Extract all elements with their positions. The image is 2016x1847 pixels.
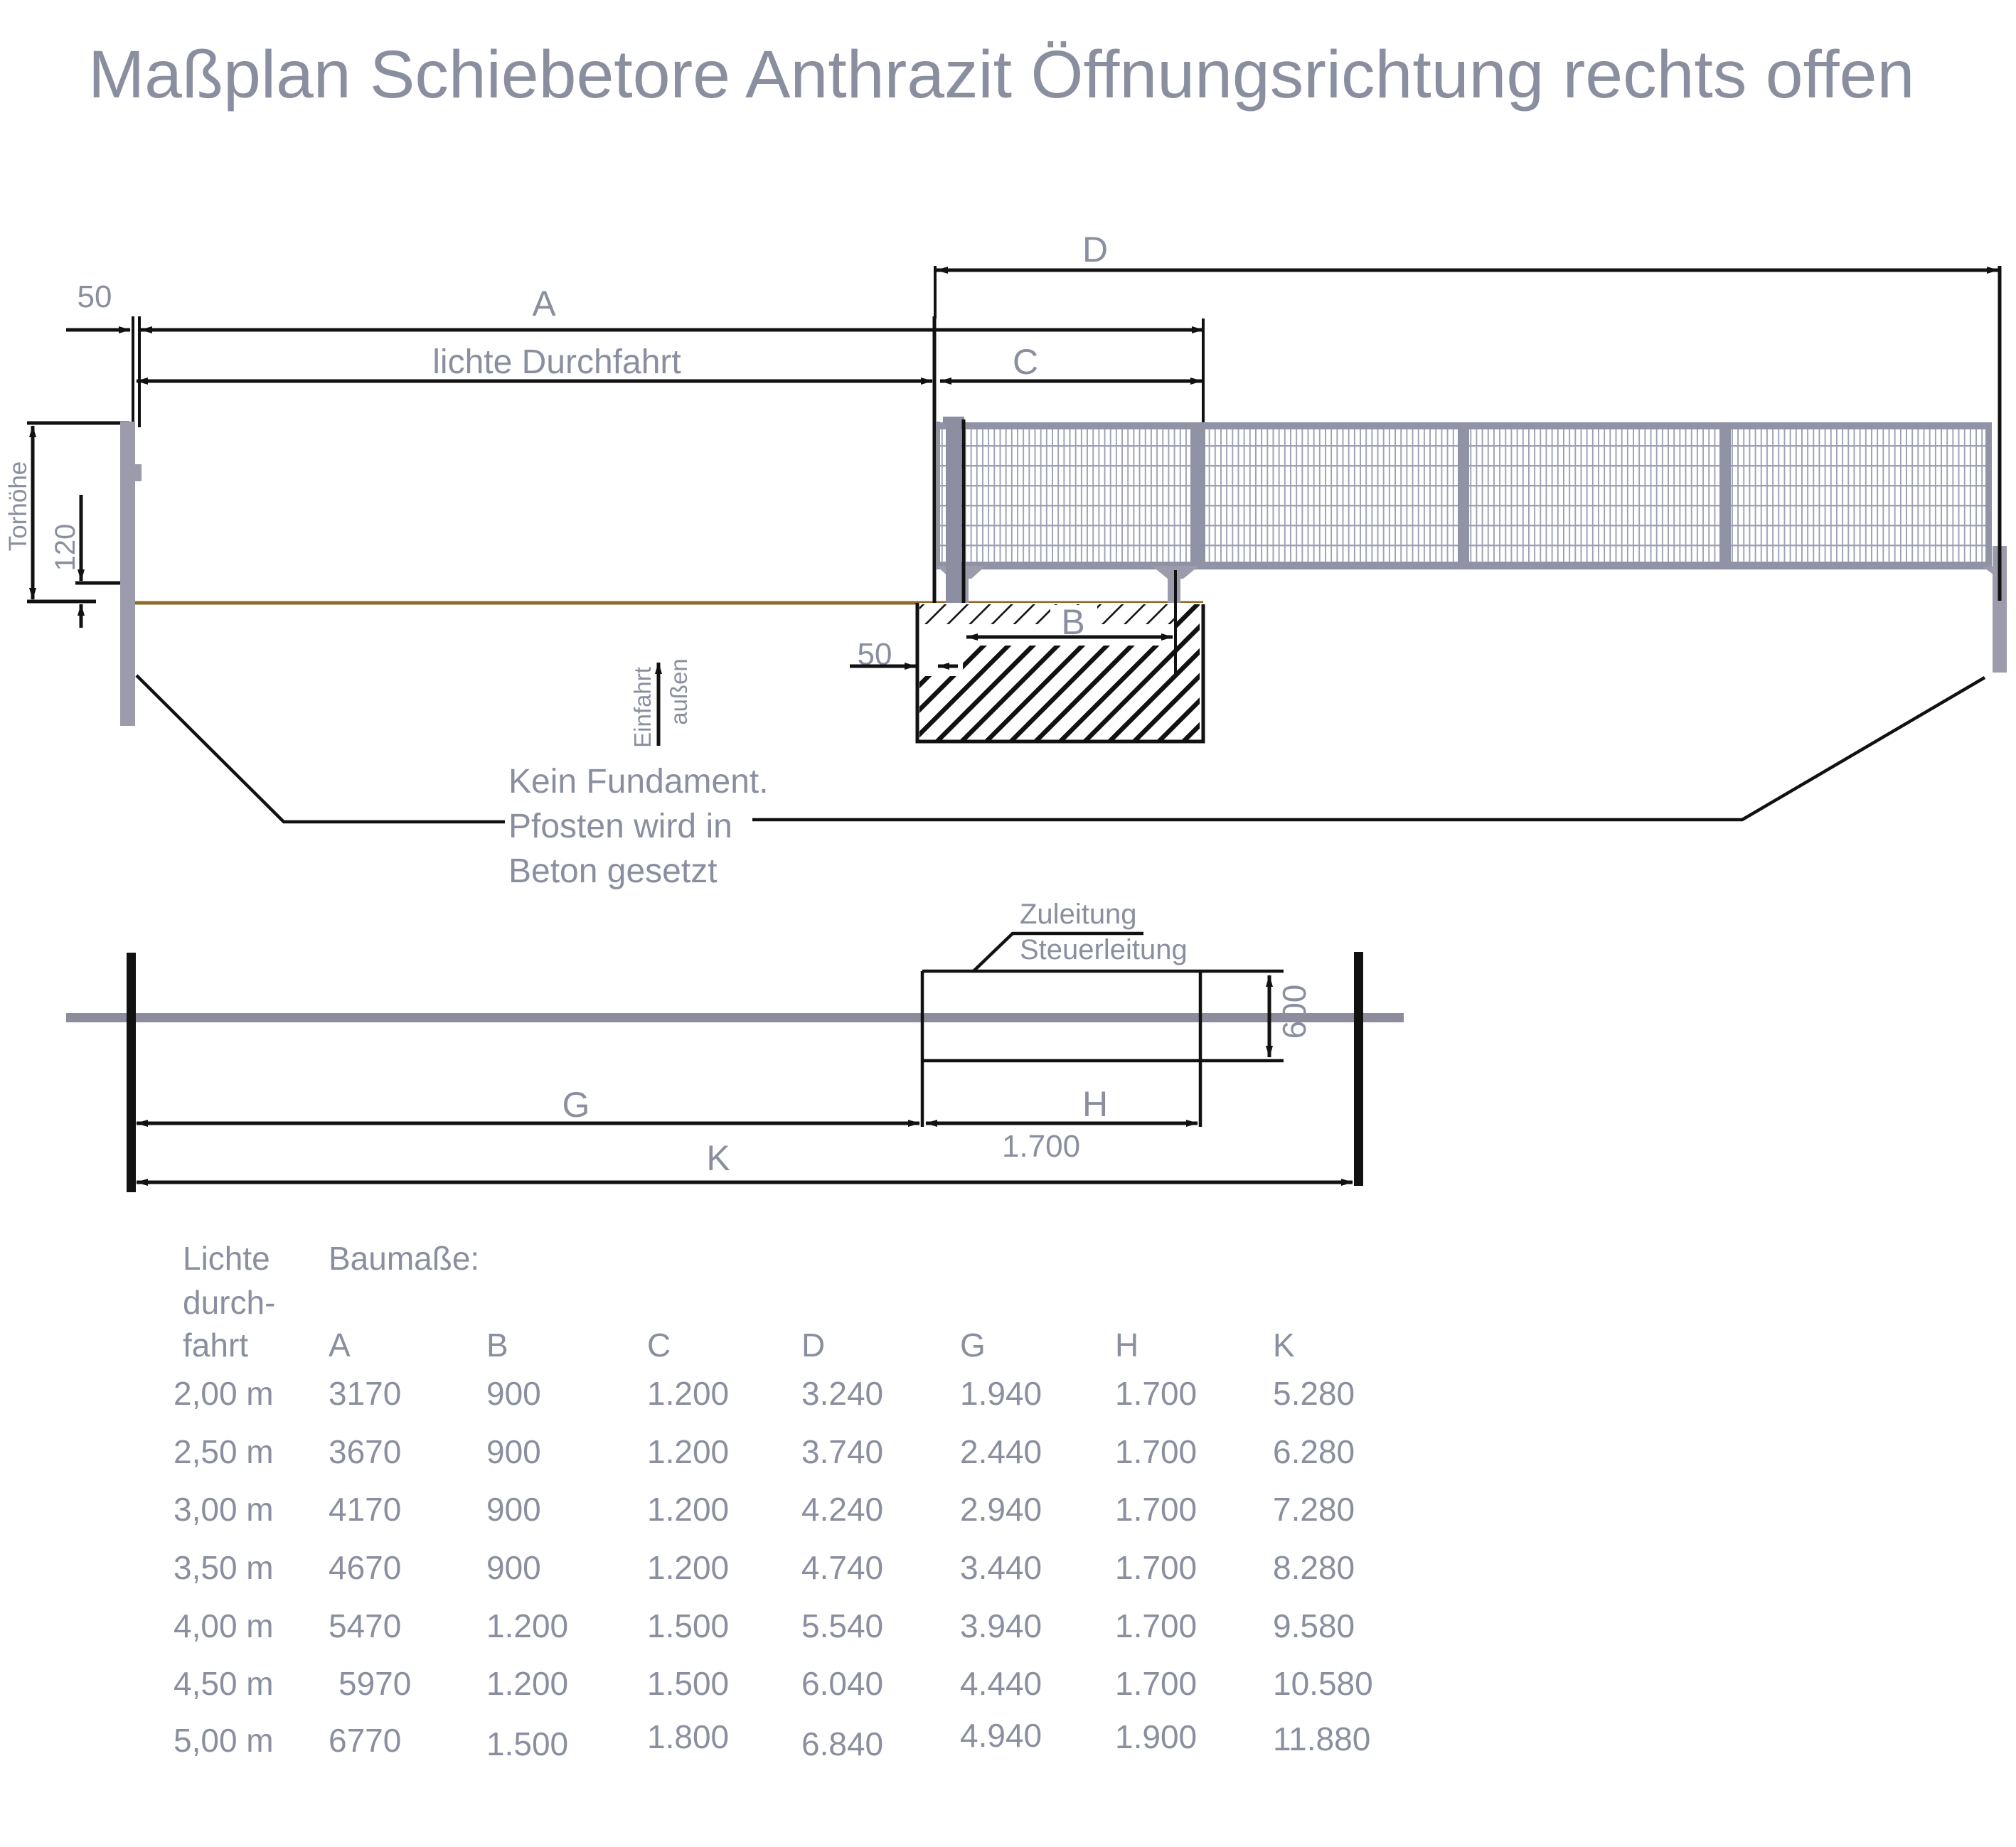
svg-text:Maßplan Schiebetore Anthrazit: Maßplan Schiebetore Anthrazit Öffnungsri…	[88, 37, 1914, 112]
svg-text:1.200: 1.200	[647, 1433, 729, 1470]
svg-text:A: A	[532, 284, 556, 323]
svg-text:600: 600	[1276, 985, 1313, 1039]
svg-text:H: H	[1082, 1084, 1108, 1124]
svg-text:A: A	[329, 1327, 351, 1364]
svg-text:K: K	[1273, 1327, 1295, 1364]
svg-text:Lichte: Lichte	[183, 1240, 270, 1277]
svg-text:2,00 m: 2,00 m	[174, 1375, 274, 1412]
svg-text:Zuleitung: Zuleitung	[1020, 899, 1137, 930]
svg-text:1.700: 1.700	[1115, 1375, 1197, 1412]
svg-text:5.540: 5.540	[801, 1607, 883, 1644]
svg-text:1.500: 1.500	[486, 1725, 568, 1762]
svg-text:K: K	[706, 1138, 730, 1178]
svg-text:Einfahrt: Einfahrt	[629, 667, 656, 748]
svg-text:außen: außen	[666, 658, 692, 725]
svg-text:3.440: 3.440	[960, 1549, 1042, 1586]
svg-text:6.040: 6.040	[801, 1665, 883, 1702]
svg-text:1.700: 1.700	[1115, 1491, 1197, 1528]
svg-text:Pfosten wird in: Pfosten wird in	[508, 808, 732, 845]
svg-text:5,00 m: 5,00 m	[174, 1722, 274, 1759]
svg-text:fahrt: fahrt	[183, 1327, 248, 1364]
svg-text:1.500: 1.500	[647, 1665, 729, 1702]
svg-text:1.700: 1.700	[1115, 1665, 1197, 1702]
svg-text:3170: 3170	[329, 1375, 401, 1412]
svg-text:G: G	[562, 1085, 590, 1125]
svg-text:1.200: 1.200	[647, 1375, 729, 1412]
svg-text:C: C	[647, 1327, 671, 1364]
svg-text:3.240: 3.240	[801, 1375, 883, 1412]
svg-text:3670: 3670	[329, 1433, 401, 1470]
svg-text:3,50 m: 3,50 m	[174, 1549, 274, 1586]
svg-text:Torhöhe: Torhöhe	[4, 461, 32, 551]
svg-text:5970: 5970	[338, 1665, 411, 1702]
svg-text:4,00 m: 4,00 m	[174, 1607, 274, 1644]
svg-text:4.240: 4.240	[801, 1491, 883, 1528]
svg-text:2.940: 2.940	[960, 1491, 1042, 1528]
svg-text:D: D	[1082, 230, 1108, 269]
svg-text:5470: 5470	[329, 1607, 401, 1644]
svg-text:2.440: 2.440	[960, 1433, 1042, 1470]
svg-text:1.500: 1.500	[647, 1607, 729, 1644]
svg-text:Beton gesetzt: Beton gesetzt	[508, 852, 718, 890]
svg-text:4,50 m: 4,50 m	[174, 1665, 274, 1702]
svg-text:1.700: 1.700	[1115, 1607, 1197, 1644]
svg-text:1.200: 1.200	[647, 1549, 729, 1586]
svg-text:B: B	[486, 1327, 508, 1364]
svg-text:durch-: durch-	[183, 1284, 275, 1321]
svg-text:3.740: 3.740	[801, 1433, 883, 1470]
svg-text:G: G	[960, 1327, 986, 1364]
svg-text:6.280: 6.280	[1273, 1433, 1355, 1470]
svg-text:8.280: 8.280	[1273, 1549, 1355, 1586]
svg-text:900: 900	[486, 1491, 541, 1528]
svg-text:6770: 6770	[329, 1722, 401, 1759]
svg-text:9.580: 9.580	[1273, 1607, 1355, 1644]
svg-text:1.900: 1.900	[1115, 1718, 1197, 1755]
svg-text:120: 120	[50, 524, 81, 572]
svg-text:7.280: 7.280	[1273, 1491, 1355, 1528]
svg-text:4.740: 4.740	[801, 1549, 883, 1586]
svg-text:3,00 m: 3,00 m	[174, 1491, 274, 1528]
svg-text:1.700: 1.700	[1115, 1549, 1197, 1586]
svg-text:10.580: 10.580	[1273, 1665, 1373, 1702]
svg-text:4670: 4670	[329, 1549, 401, 1586]
svg-text:1.700: 1.700	[1115, 1433, 1197, 1470]
svg-text:C: C	[1013, 342, 1038, 382]
svg-text:1.200: 1.200	[486, 1607, 568, 1644]
svg-text:11.880: 11.880	[1273, 1720, 1370, 1757]
svg-text:6.840: 6.840	[801, 1725, 883, 1762]
svg-text:1.200: 1.200	[647, 1491, 729, 1528]
svg-text:4170: 4170	[329, 1491, 401, 1528]
svg-text:1.940: 1.940	[960, 1375, 1042, 1412]
svg-text:4.440: 4.440	[960, 1665, 1042, 1702]
svg-text:1.200: 1.200	[486, 1665, 568, 1702]
svg-text:3.940: 3.940	[960, 1607, 1042, 1644]
svg-text:lichte Durchfahrt: lichte Durchfahrt	[432, 343, 681, 381]
svg-text:1.700: 1.700	[1002, 1129, 1080, 1164]
svg-text:Kein Fundament.: Kein Fundament.	[508, 763, 769, 801]
svg-text:900: 900	[486, 1549, 541, 1586]
svg-text:5.280: 5.280	[1273, 1375, 1355, 1412]
svg-text:Baumaße:: Baumaße:	[329, 1240, 479, 1277]
svg-text:900: 900	[486, 1433, 541, 1470]
svg-text:D: D	[801, 1327, 825, 1364]
svg-text:50: 50	[78, 279, 112, 314]
svg-text:Steuerleitung: Steuerleitung	[1020, 934, 1188, 965]
svg-text:1.800: 1.800	[647, 1718, 729, 1755]
svg-text:H: H	[1115, 1327, 1138, 1364]
svg-text:2,50 m: 2,50 m	[174, 1433, 274, 1470]
svg-text:4.940: 4.940	[960, 1717, 1042, 1754]
svg-text:900: 900	[486, 1375, 541, 1412]
